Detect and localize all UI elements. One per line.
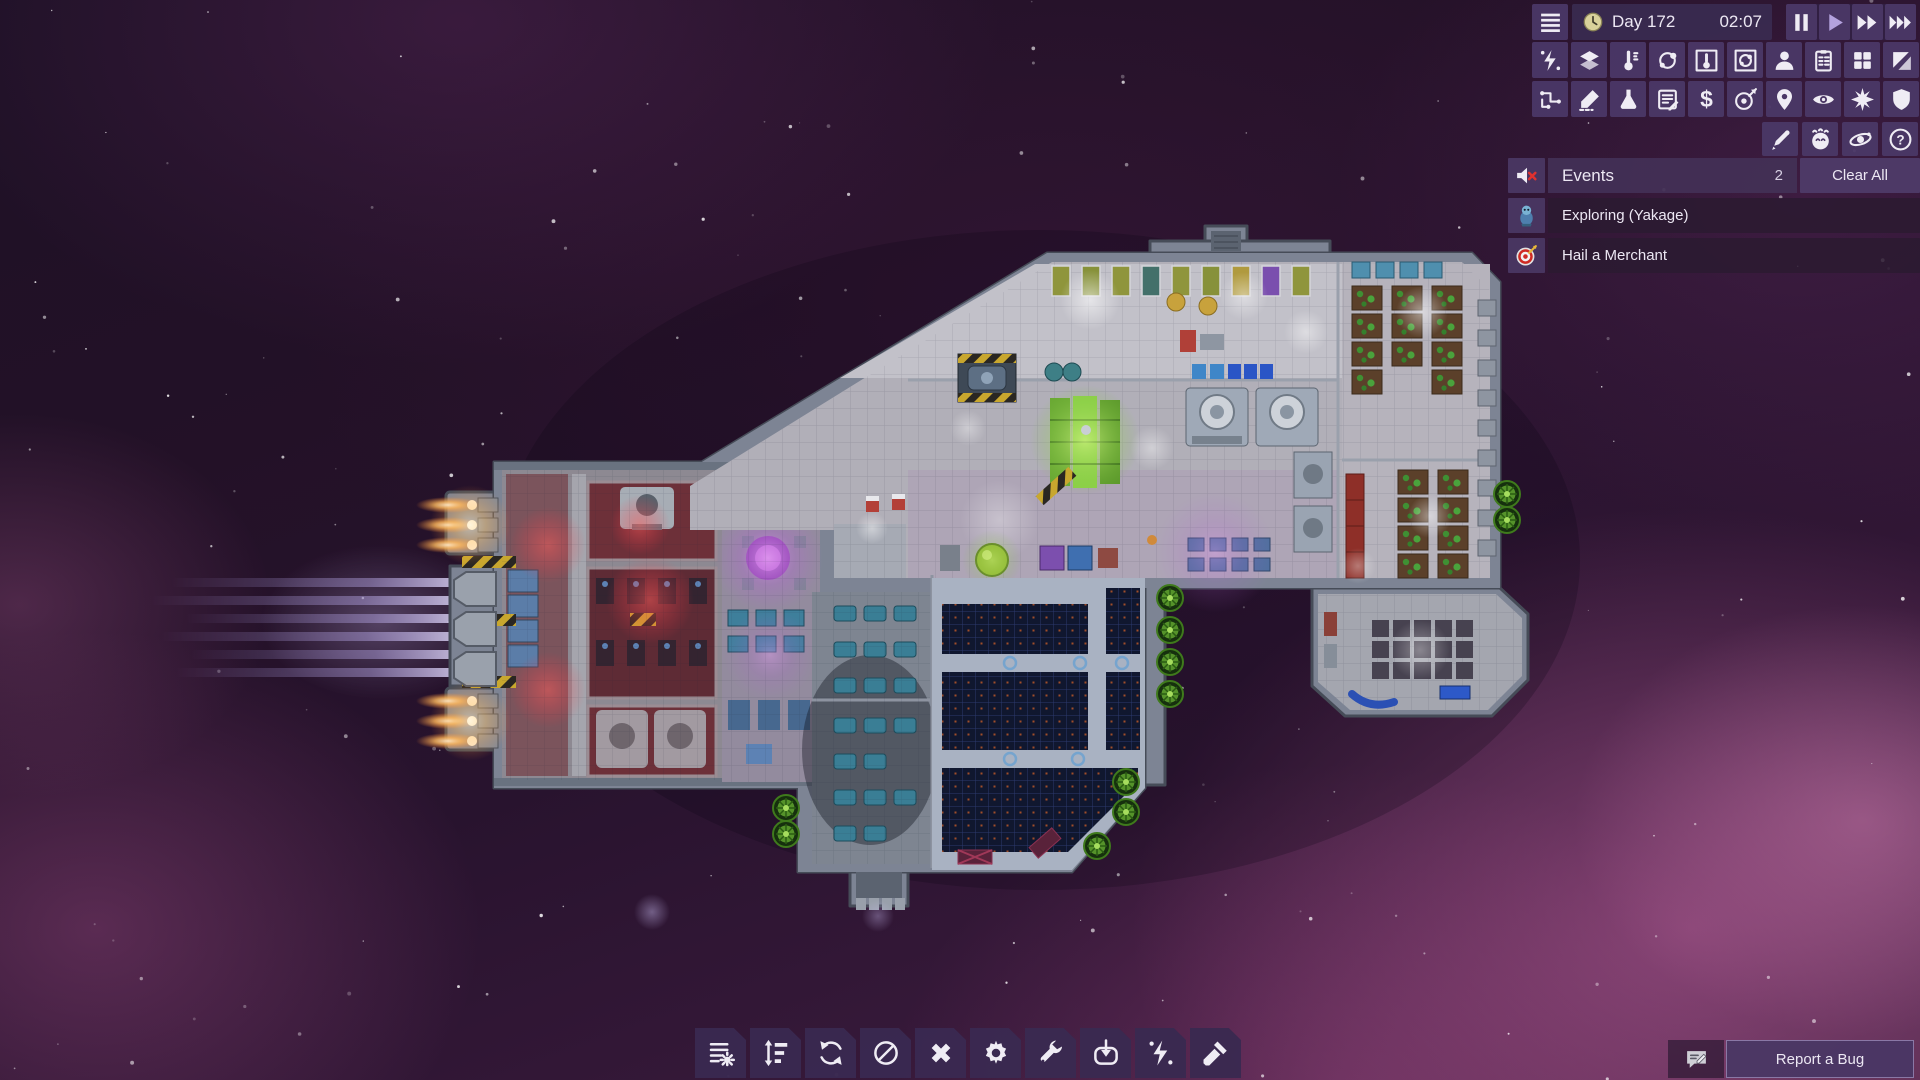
build-list-button[interactable] xyxy=(695,1028,746,1078)
power-icon xyxy=(1538,48,1563,73)
tasks-clipboard-icon xyxy=(1811,48,1836,73)
events-title-area: Events 2 xyxy=(1548,158,1797,193)
temperature-overlay-icon xyxy=(1694,48,1719,73)
main-menu-button[interactable] xyxy=(1532,4,1568,40)
deconstruct-hammer-icon xyxy=(1201,1038,1231,1068)
tool-logistics-button[interactable] xyxy=(1532,81,1568,117)
gas-overlay-icon xyxy=(1733,48,1758,73)
toolbar-row-view: ? xyxy=(1762,122,1918,156)
events-count: 2 xyxy=(1775,167,1783,184)
pause-button[interactable] xyxy=(1786,4,1817,40)
pause-icon xyxy=(1789,10,1814,35)
planet-moods-icon xyxy=(1808,127,1833,152)
import-button[interactable] xyxy=(1080,1028,1131,1078)
top-bar: Day 172 02:07 xyxy=(1532,4,1916,40)
lounge-section xyxy=(1318,594,1522,710)
tool-temperature-overlay-button[interactable] xyxy=(1688,42,1724,78)
gas-icon xyxy=(1655,48,1680,73)
event-label: Hail a Merchant xyxy=(1562,247,1667,264)
rooms-grid-icon xyxy=(1850,48,1875,73)
tool-trade-button[interactable]: $ xyxy=(1688,81,1724,117)
layers-icon xyxy=(1577,48,1602,73)
events-title: Events xyxy=(1562,166,1614,186)
events-clear-all-button[interactable]: Clear All xyxy=(1800,158,1920,193)
help-icon: ? xyxy=(1888,127,1913,152)
repair-button[interactable] xyxy=(1025,1028,1076,1078)
tool-crew-button[interactable] xyxy=(1766,42,1802,78)
time-label: 02:07 xyxy=(1719,12,1762,32)
bug-report-bar: Report a Bug xyxy=(1668,1040,1914,1078)
tool-data-logs-button[interactable] xyxy=(1649,81,1685,117)
tool-research-button[interactable] xyxy=(1610,81,1646,117)
combat-burst-icon xyxy=(1850,87,1875,112)
tool-draw-button[interactable] xyxy=(1571,81,1607,117)
time-bar: Day 172 02:07 xyxy=(1572,4,1772,40)
import-down-icon xyxy=(1091,1038,1121,1068)
settings-gear-icon xyxy=(981,1038,1011,1068)
trade-dollar-icon: $ xyxy=(1694,87,1719,112)
tool-combat-button[interactable] xyxy=(1844,81,1880,117)
events-mute-button[interactable] xyxy=(1508,158,1545,193)
deconstruct-button[interactable] xyxy=(1190,1028,1241,1078)
logistics-pipes-icon xyxy=(1538,87,1563,112)
tool-paint-button[interactable] xyxy=(1762,122,1798,156)
fast-forward-icon xyxy=(1855,10,1880,35)
priority-sort-icon xyxy=(761,1038,791,1068)
system-view-orbit-icon xyxy=(1848,127,1873,152)
build-list-icon xyxy=(706,1038,736,1068)
visibility-eye-icon xyxy=(1811,87,1836,112)
tool-system-view-button[interactable] xyxy=(1842,122,1878,156)
report-a-bug-button[interactable]: Report a Bug xyxy=(1726,1040,1914,1078)
help-icon-glyph: ? xyxy=(1896,132,1904,147)
day-label: Day 172 xyxy=(1612,12,1711,32)
repair-wrench-icon xyxy=(1036,1038,1066,1068)
missions-target-icon xyxy=(1733,87,1758,112)
fastest-forward-icon xyxy=(1888,10,1913,35)
paint-brush-icon xyxy=(1768,127,1793,152)
draw-pencil-icon xyxy=(1577,87,1602,112)
defense-shield-icon xyxy=(1889,87,1914,112)
forbid-icon xyxy=(871,1038,901,1068)
chat-pencil-icon xyxy=(1684,1047,1709,1072)
tool-planet-moods-button[interactable] xyxy=(1802,122,1838,156)
tool-shield-button[interactable] xyxy=(1883,81,1919,117)
explorer-creature-icon xyxy=(1514,203,1539,228)
navigation-pin-icon xyxy=(1772,87,1797,112)
tool-navigation-button[interactable] xyxy=(1766,81,1802,117)
cancel-button[interactable] xyxy=(915,1028,966,1078)
fastest-forward-button[interactable] xyxy=(1885,4,1916,40)
tool-help-button[interactable]: ? xyxy=(1882,122,1918,156)
clock-icon xyxy=(1582,11,1604,33)
rotate-icon xyxy=(816,1038,846,1068)
tool-temperature-button[interactable] xyxy=(1610,42,1646,78)
fast-forward-button[interactable] xyxy=(1852,4,1883,40)
tool-floor-tiles-button[interactable] xyxy=(1883,42,1919,78)
settings-button[interactable] xyxy=(970,1028,1021,1078)
game-screen: Day 172 02:07 xyxy=(0,0,1920,1080)
priority-sort-button[interactable] xyxy=(750,1028,801,1078)
events-panel: Events 2 Clear All Exploring (Yakage) xyxy=(1508,158,1920,278)
play-button[interactable] xyxy=(1819,4,1850,40)
data-logs-icon xyxy=(1655,87,1680,112)
floor-tiles-icon xyxy=(1889,48,1914,73)
rotate-button[interactable] xyxy=(805,1028,856,1078)
speed-controls xyxy=(1786,4,1916,40)
speaker-muted-icon xyxy=(1514,163,1539,188)
merchant-target-icon xyxy=(1514,243,1539,268)
tool-gas-button[interactable] xyxy=(1649,42,1685,78)
temperature-icon xyxy=(1616,48,1641,73)
tool-power-button[interactable] xyxy=(1532,42,1568,78)
tool-layers-button[interactable] xyxy=(1571,42,1607,78)
event-label: Exploring (Yakage) xyxy=(1562,207,1688,224)
events-header: Events 2 Clear All xyxy=(1508,158,1920,193)
tool-rooms-button[interactable] xyxy=(1844,42,1880,78)
engine-trails xyxy=(150,544,500,700)
forbid-button[interactable] xyxy=(860,1028,911,1078)
bug-report-icon-tile xyxy=(1668,1040,1724,1078)
event-icon-tile xyxy=(1508,198,1545,233)
event-row[interactable]: Exploring (Yakage) xyxy=(1508,198,1920,233)
event-icon-tile xyxy=(1508,238,1545,273)
trade-icon-glyph: $ xyxy=(1700,87,1713,112)
hamburger-menu-icon xyxy=(1538,10,1563,35)
tool-missions-button[interactable] xyxy=(1727,81,1763,117)
tool-visibility-button[interactable] xyxy=(1805,81,1841,117)
research-flask-icon xyxy=(1616,87,1641,112)
tool-tasks-button[interactable] xyxy=(1805,42,1841,78)
player-ship[interactable] xyxy=(416,226,1580,932)
bottom-toolbar xyxy=(695,1028,1241,1078)
power-bolt-icon xyxy=(1146,1038,1176,1068)
power-tool-button[interactable] xyxy=(1135,1028,1186,1078)
tool-gas-overlay-button[interactable] xyxy=(1727,42,1763,78)
event-row[interactable]: Hail a Merchant xyxy=(1508,238,1920,273)
crew-icon xyxy=(1772,48,1797,73)
play-icon xyxy=(1822,10,1847,35)
toolbar-row-management: $ xyxy=(1532,81,1919,117)
cancel-x-icon xyxy=(926,1038,956,1068)
toolbar-row-overlays xyxy=(1532,42,1919,78)
